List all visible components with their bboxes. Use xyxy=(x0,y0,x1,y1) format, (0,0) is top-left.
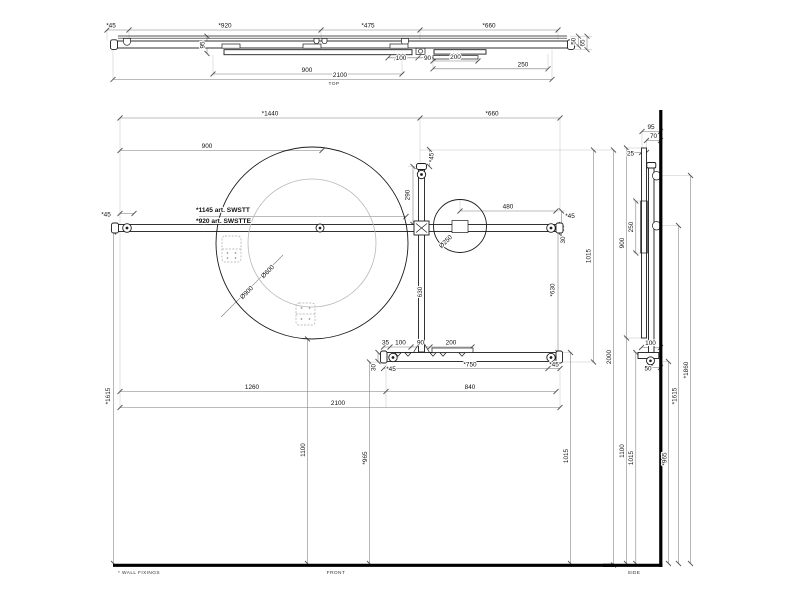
dim-label: 100 xyxy=(396,55,407,62)
vertical-bar-cap xyxy=(417,164,427,170)
dim-label: *920 xyxy=(218,23,232,30)
dim-label: *45 xyxy=(386,366,396,373)
side-view-dimension-lines xyxy=(627,132,691,564)
wall-hook xyxy=(322,38,327,43)
vertical-bar-cap xyxy=(647,163,656,169)
wall-hook xyxy=(124,38,131,45)
rail-end-cap-right xyxy=(556,223,563,233)
dim-label: 100 xyxy=(645,340,656,347)
dim-label: 840 xyxy=(465,384,476,391)
front-view-labels: *1440 *660 900 *45 *1145 art. SWSTT *920… xyxy=(101,111,613,577)
view-title-side: SIDE xyxy=(628,570,641,576)
dim-label: *965 xyxy=(661,452,668,466)
dim-label: *45 xyxy=(106,23,116,30)
dim-label: 50 xyxy=(644,366,652,373)
vertical-bar xyxy=(419,169,425,352)
dim-label: *1615 xyxy=(105,387,112,404)
wall-hook xyxy=(314,38,319,43)
mirror-900-edge xyxy=(224,50,412,55)
dim-label: *1615 xyxy=(671,387,678,404)
dim-label: 1100 xyxy=(300,443,307,457)
dim-label: 250 xyxy=(628,221,635,232)
dim-label: 1260 xyxy=(245,384,260,391)
dim-label: *660 xyxy=(482,23,496,30)
dim-label: 900 xyxy=(202,143,213,150)
dim-label: 65 xyxy=(580,39,587,47)
technical-drawing: *45 *920 *475 *660 50 65 95 100 90 200 2… xyxy=(0,0,800,600)
rail-end-cap-left xyxy=(111,40,118,50)
article-note-2: *920 art. SWSTTE xyxy=(196,218,252,225)
diameter-label-250: Ø250 xyxy=(438,234,454,250)
mirror-circle-600 xyxy=(248,179,376,307)
dim-label: *45 xyxy=(565,213,575,220)
dim-label: 70 xyxy=(650,133,658,140)
dim-label: 1015 xyxy=(628,450,635,465)
front-view-geometry xyxy=(112,147,615,565)
article-note-1: *1145 art. SWSTT xyxy=(196,207,250,214)
dim-label: *1860 xyxy=(683,361,690,378)
view-title-front: FRONT xyxy=(327,570,346,576)
view-title-top: TOP xyxy=(329,81,340,87)
dim-label: 95 xyxy=(199,41,206,49)
dim-label: *965 xyxy=(362,451,369,465)
side-view-geometry xyxy=(603,110,662,567)
dim-label: 900 xyxy=(302,67,313,74)
drawing-sheet: *45 *920 *475 *660 50 65 95 100 90 200 2… xyxy=(0,0,800,600)
dim-label: 90 xyxy=(424,55,432,62)
side-view-extension-lines xyxy=(624,132,691,368)
front-view: *1440 *660 900 *45 *1145 art. SWSTT *920… xyxy=(101,111,614,577)
dim-label: 25 xyxy=(627,150,635,157)
dim-label: 50 xyxy=(571,37,578,45)
rail-bar xyxy=(113,41,572,48)
dim-label: 95 xyxy=(647,124,655,131)
dim-label: 1015 xyxy=(563,448,570,463)
diameter-label-600: Ø600 xyxy=(260,264,276,280)
dim-label: *1440 xyxy=(262,111,279,118)
dim-label: 480 xyxy=(503,204,514,211)
connector-block xyxy=(452,221,468,233)
dim-label: *660 xyxy=(485,111,499,118)
front-view-dimension-lines xyxy=(114,118,614,565)
side-view: 95 70 25 900 250 100 50 *1860 *1615 1100… xyxy=(603,110,691,576)
dim-label: *45 xyxy=(549,361,559,368)
side-view-labels: 95 70 25 900 250 100 50 *1860 *1615 1100… xyxy=(619,124,690,576)
dim-label: *45 xyxy=(429,152,436,162)
vertical-bar-profile xyxy=(649,167,655,353)
front-view-extension-lines xyxy=(120,118,614,408)
shelf-bar xyxy=(386,353,556,362)
mirror-edge-profile xyxy=(642,148,647,338)
dim-label: 200 xyxy=(450,54,461,61)
dim-label: *630 xyxy=(550,283,557,297)
rail-end-cap-left xyxy=(112,223,119,233)
rail-bar xyxy=(118,225,556,232)
mounting-plate-top xyxy=(390,44,408,48)
mounting-plate-top xyxy=(303,44,321,48)
dim-label: 1015 xyxy=(586,248,593,263)
dim-label: 30 xyxy=(560,236,567,244)
top-view-geometry xyxy=(111,36,575,59)
shelf-end-cap-left xyxy=(381,351,388,363)
diameter-label-900: Ø900 xyxy=(239,285,255,301)
dim-label: *750 xyxy=(463,361,477,368)
mounting-plate-top xyxy=(222,44,240,48)
dim-label: 1100 xyxy=(619,444,626,458)
top-view: *45 *920 *475 *660 50 65 95 100 90 200 2… xyxy=(106,23,592,87)
dim-label: 290 xyxy=(405,189,412,200)
dim-label: 2100 xyxy=(331,400,346,407)
dim-label: 100 xyxy=(395,339,406,346)
dim-label: 90 xyxy=(417,339,425,346)
dim-label: 35 xyxy=(382,339,390,346)
dim-label: 250 xyxy=(518,62,529,69)
mounting-plate xyxy=(222,236,241,262)
dim-label: 630 xyxy=(417,286,424,297)
dim-label: *475 xyxy=(361,23,375,30)
dim-label: *45 xyxy=(101,212,111,219)
dim-label: 200 xyxy=(446,339,457,346)
plate-200 xyxy=(432,348,473,353)
dim-label: 30 xyxy=(371,364,378,372)
mirror-circle-900 xyxy=(216,147,408,339)
dim-label: 2000 xyxy=(606,349,613,364)
footnote: * WALL FIXINGS xyxy=(118,570,160,576)
dim-label: 900 xyxy=(619,237,626,248)
dim-label: 2100 xyxy=(333,72,348,79)
